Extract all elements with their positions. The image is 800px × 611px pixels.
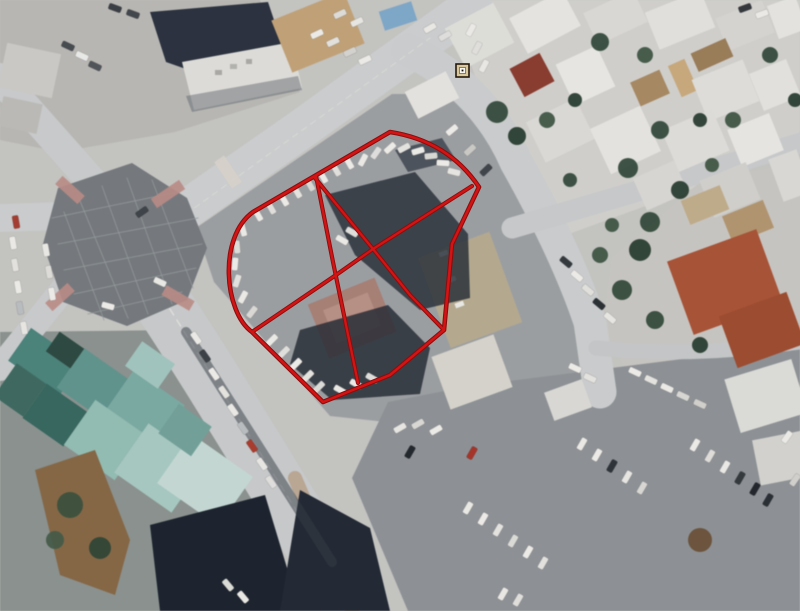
car <box>424 152 438 160</box>
tree <box>46 531 64 549</box>
tree <box>508 127 526 145</box>
satellite-map-canvas[interactable] <box>0 0 800 611</box>
roof-unit <box>230 64 237 69</box>
tree <box>725 112 741 128</box>
tree <box>671 181 689 199</box>
tree <box>646 311 664 329</box>
tree <box>89 537 111 559</box>
tree <box>762 47 778 63</box>
tree <box>591 33 609 51</box>
tree <box>640 212 660 232</box>
tree <box>612 280 632 300</box>
roof-unit <box>246 59 252 64</box>
tree <box>651 121 669 139</box>
tree <box>637 47 653 63</box>
tree <box>568 93 582 107</box>
tree <box>57 492 83 518</box>
placemark-center-dot <box>462 70 464 72</box>
tree <box>692 337 708 353</box>
tree <box>688 528 712 552</box>
tree <box>592 247 608 263</box>
car <box>231 257 238 270</box>
tree <box>618 158 638 178</box>
tree <box>605 218 619 232</box>
roof-unit <box>215 70 222 75</box>
tree <box>563 173 577 187</box>
tree <box>693 113 707 127</box>
tree <box>539 112 555 128</box>
tree <box>486 101 508 123</box>
placemark-icon[interactable] <box>456 64 469 77</box>
aerial-imagery <box>0 0 800 611</box>
tree <box>705 158 719 172</box>
tree <box>629 239 651 261</box>
car <box>436 159 449 166</box>
aerial-view[interactable] <box>0 0 800 611</box>
